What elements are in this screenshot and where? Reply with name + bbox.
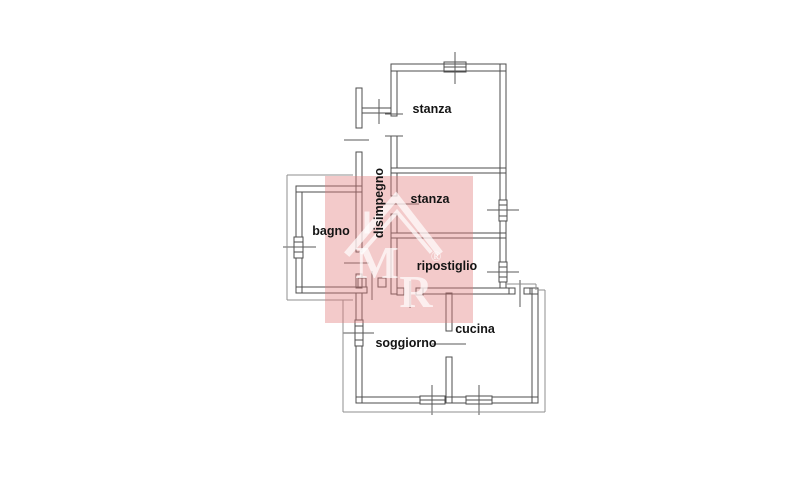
room-label-stanza-top: stanza <box>413 102 453 116</box>
room-label-disimpegno: disimpegno <box>372 168 386 239</box>
floor-plan-canvas: M R ® stanza stanza disimpegno bagno rip… <box>0 0 800 504</box>
wall-segment <box>296 258 302 293</box>
room-label-cucina: cucina <box>455 322 496 336</box>
wall-segment <box>500 64 506 200</box>
wall-segment <box>445 397 466 403</box>
wall-segment <box>530 288 538 294</box>
room-label-ripostiglio: ripostiglio <box>417 259 478 273</box>
watermark-letter-r: R <box>399 266 433 317</box>
watermark-letter-m: M <box>355 237 398 288</box>
wall-segment <box>362 108 391 113</box>
wall-segment <box>532 288 538 403</box>
wall-segment <box>391 136 397 168</box>
wall-segment <box>500 221 506 262</box>
room-label-stanza-mid: stanza <box>411 192 451 206</box>
wall-segment <box>391 71 397 116</box>
door-jamb <box>524 288 530 294</box>
wall-segment <box>356 346 362 403</box>
wall-segment <box>446 357 452 403</box>
wall-segment <box>492 397 538 403</box>
door-jamb <box>509 288 515 294</box>
wall-segment <box>500 282 506 288</box>
room-label-soggiorno: soggiorno <box>375 336 436 350</box>
floor-plan-drawing: M R ® stanza stanza disimpegno bagno rip… <box>0 0 800 504</box>
wall-segment <box>356 88 362 128</box>
watermark: M R ® <box>325 176 473 323</box>
wall-segment <box>296 192 302 237</box>
wall-segment <box>356 397 420 403</box>
wall-segment <box>391 168 506 173</box>
room-label-bagno: bagno <box>312 224 350 238</box>
